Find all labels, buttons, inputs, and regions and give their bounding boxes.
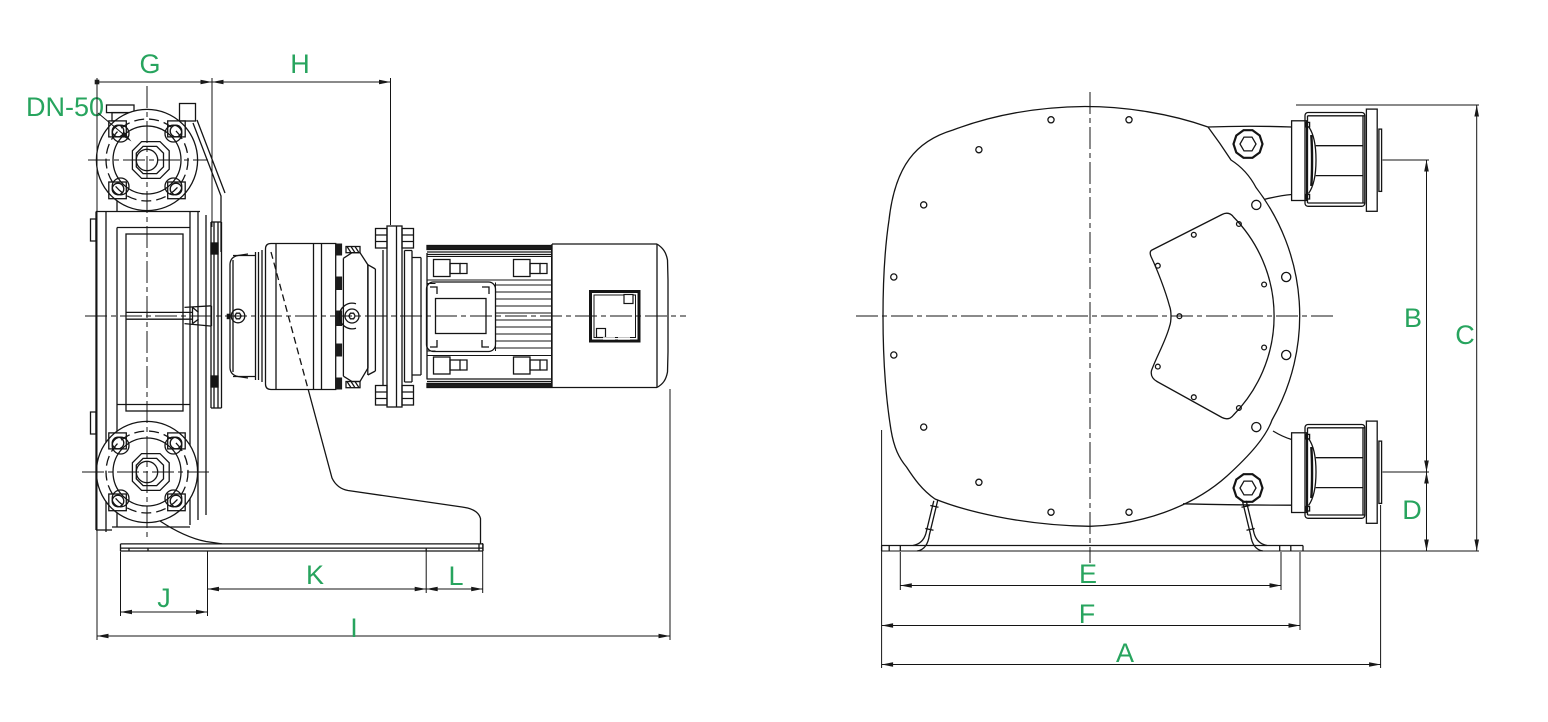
svg-text:E: E bbox=[1079, 559, 1097, 589]
svg-text:C: C bbox=[1455, 320, 1475, 350]
svg-text:DN-50: DN-50 bbox=[26, 92, 104, 122]
svg-text:D: D bbox=[1402, 495, 1422, 525]
svg-text:B: B bbox=[1404, 303, 1422, 333]
svg-text:I: I bbox=[350, 613, 358, 643]
svg-text:J: J bbox=[157, 583, 171, 613]
svg-text:L: L bbox=[448, 561, 463, 591]
svg-text:A: A bbox=[1116, 638, 1134, 668]
svg-text:H: H bbox=[290, 49, 310, 79]
svg-text:K: K bbox=[306, 560, 324, 590]
svg-text:F: F bbox=[1079, 599, 1096, 629]
svg-text:G: G bbox=[139, 49, 160, 79]
